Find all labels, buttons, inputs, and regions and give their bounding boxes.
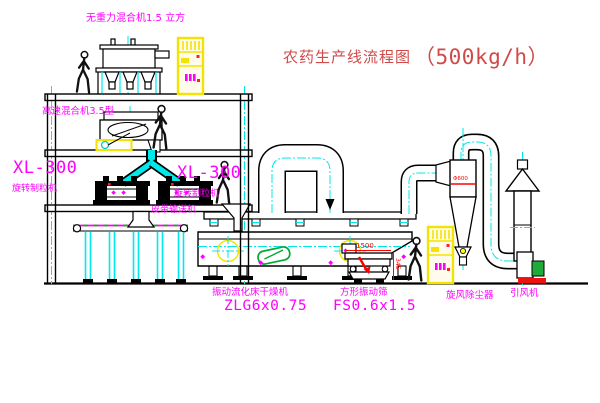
control-cabinet-2	[428, 227, 453, 283]
granulator-machines	[93, 176, 213, 227]
induced-fan-machine	[517, 252, 546, 284]
drawing-title-text: 农药生产线流程图	[283, 50, 411, 65]
label-dryer-model: ZLG6x0.75	[224, 299, 307, 314]
dimension-cyclone: Φ600	[453, 177, 468, 183]
dimension-sieve-height: 345	[394, 258, 400, 269]
duct-to-cyclone	[409, 161, 451, 214]
label-granulator-right-name: 旋转制粒机	[174, 190, 219, 199]
belt-conveyor-machine	[73, 225, 188, 283]
dimension-sieve-length: 1500	[356, 243, 374, 250]
gravity-mixer-machine	[96, 39, 169, 94]
label-granulator-left-model: XL-300	[13, 160, 77, 177]
label-gravity-mixer: 无重力混合机1.5 立方	[86, 14, 185, 24]
label-dryer-name: 振动流化床干燥机	[212, 288, 288, 298]
label-cyclone: 旋风除尘器	[446, 291, 494, 301]
label-induced-fan: 引风机	[510, 289, 539, 299]
label-high-speed-mixer: 高速混合机3.5型	[42, 107, 114, 117]
granulator-left	[93, 176, 150, 205]
label-sieve-name: 方形振动筛	[340, 288, 388, 298]
label-granulator-right-model: XL-300	[177, 165, 241, 182]
control-cabinet-1	[178, 38, 203, 94]
cad-drawing-page: 农药生产线流程图 （500kg/h） 无重力混合机1.5 立方 高速混合机3.5…	[0, 0, 600, 403]
drawing-title: 农药生产线流程图 （500kg/h）	[283, 47, 549, 68]
label-sieve-model: FS0.6x1.5	[333, 299, 416, 314]
label-belt-conveyor: 皮带输送机	[151, 206, 196, 215]
person-top-floor	[77, 52, 89, 93]
dryer-exhaust-duct	[272, 158, 335, 213]
high-speed-mixer-machine	[97, 112, 163, 152]
label-granulator-left-name: 旋转制粒机	[12, 185, 57, 194]
person-ground	[409, 238, 422, 281]
drawing-capacity-text: （500kg/h）	[414, 47, 549, 68]
